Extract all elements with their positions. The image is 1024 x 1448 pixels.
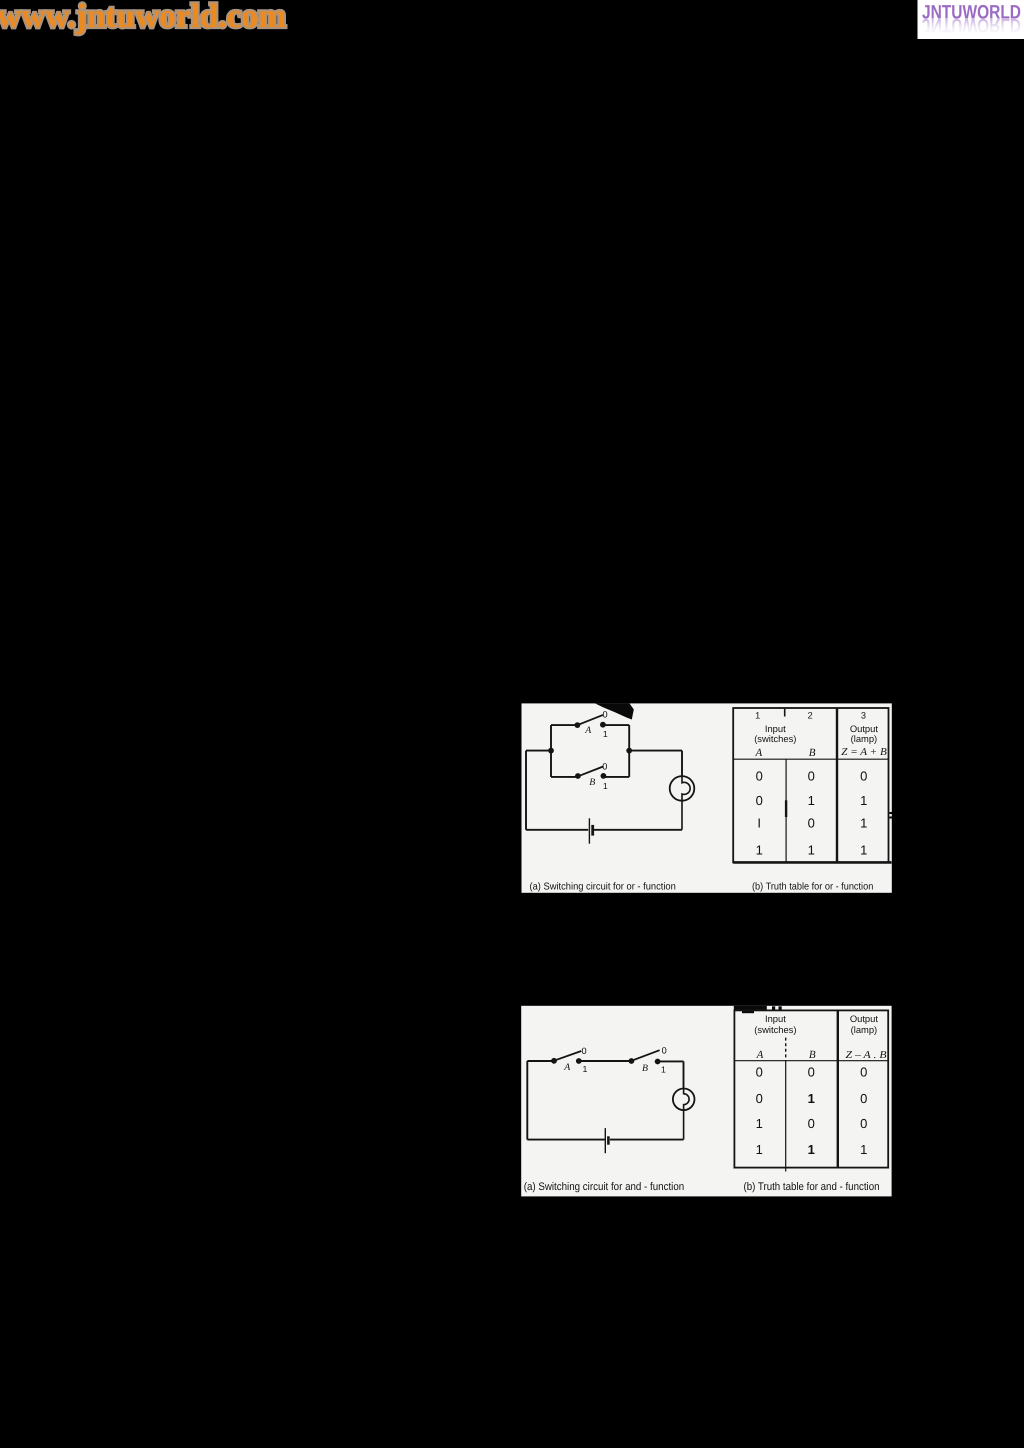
svg-text:B: B	[589, 777, 595, 788]
svg-text:1: 1	[583, 1064, 588, 1074]
svg-text:0: 0	[808, 815, 815, 830]
svg-text:Z = A + B: Z = A + B	[841, 747, 887, 758]
svg-text:(lamp): (lamp)	[851, 733, 878, 744]
svg-text:www.jntuworld.com: www.jntuworld.com	[0, 0, 286, 35]
svg-text:0: 0	[581, 1046, 586, 1056]
svg-text:0: 0	[756, 769, 763, 784]
svg-text:0: 0	[860, 1091, 867, 1106]
svg-text:A: A	[756, 1049, 764, 1061]
svg-text:0: 0	[756, 1091, 763, 1106]
svg-text:0: 0	[860, 1065, 867, 1080]
svg-text:0: 0	[808, 769, 815, 784]
svg-text:0: 0	[602, 762, 607, 772]
svg-text:1: 1	[860, 1142, 867, 1157]
svg-text:(b) Truth table for and - func: (b) Truth table for and - function	[744, 1181, 880, 1193]
svg-text:0: 0	[602, 710, 607, 720]
svg-text:Input: Input	[765, 1013, 786, 1024]
svg-text:1: 1	[756, 1116, 763, 1131]
svg-text:1: 1	[603, 729, 608, 739]
svg-text:(b) Truth table for or - funct: (b) Truth table for or - function	[752, 881, 873, 892]
svg-text:JNTUWORLD: JNTUWORLD	[922, 14, 1021, 36]
svg-text:3: 3	[861, 710, 866, 720]
svg-text:I: I	[757, 815, 761, 830]
svg-text:Output: Output	[850, 1013, 879, 1024]
svg-text:B: B	[642, 1063, 648, 1074]
svg-text:1: 1	[756, 1142, 763, 1157]
svg-text:B: B	[809, 1049, 816, 1061]
svg-text:(lamp): (lamp)	[851, 1024, 878, 1035]
svg-text:A: A	[584, 725, 592, 736]
svg-text:0: 0	[756, 793, 763, 808]
svg-text:1: 1	[756, 843, 763, 858]
svg-text:A: A	[755, 747, 763, 759]
svg-text:A: A	[563, 1062, 571, 1073]
svg-text:1: 1	[755, 710, 760, 720]
svg-text:Z – A . B: Z – A . B	[846, 1050, 888, 1061]
svg-text:0: 0	[808, 1065, 815, 1080]
svg-text:0: 0	[860, 1116, 867, 1131]
svg-text:0: 0	[808, 1116, 815, 1131]
svg-text:(switches): (switches)	[754, 1024, 796, 1035]
svg-text:(a) Switching circuit for or -: (a) Switching circuit for or - function	[530, 881, 676, 892]
svg-text:0: 0	[756, 1065, 763, 1080]
svg-text:2: 2	[808, 710, 813, 720]
svg-text:B: B	[809, 747, 816, 759]
svg-text:0: 0	[662, 1046, 667, 1056]
svg-text:1: 1	[808, 793, 815, 808]
svg-text:1: 1	[860, 793, 867, 808]
svg-text:(switches): (switches)	[754, 733, 796, 744]
svg-text:0: 0	[860, 769, 867, 784]
svg-text:1: 1	[808, 843, 815, 858]
svg-text:1: 1	[808, 1142, 815, 1157]
svg-text:1: 1	[603, 781, 608, 791]
svg-text:1: 1	[808, 1091, 815, 1106]
svg-text:(a) Switching circuit for and: (a) Switching circuit for and - function	[524, 1181, 685, 1193]
svg-text:1: 1	[860, 843, 867, 858]
svg-text:1: 1	[661, 1065, 666, 1075]
svg-text:1: 1	[860, 815, 867, 830]
